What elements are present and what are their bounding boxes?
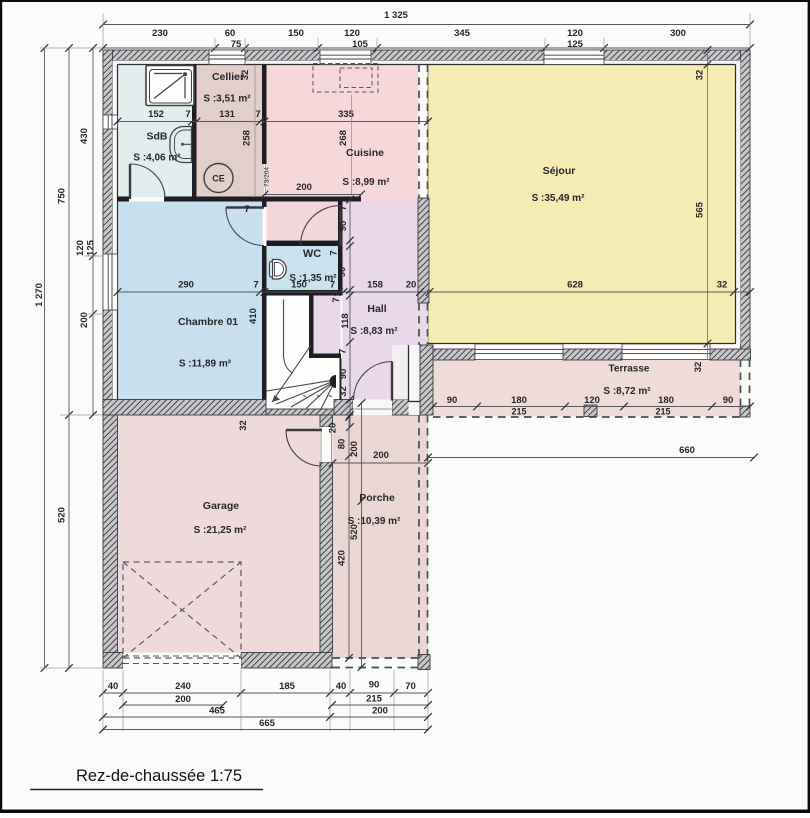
svg-text:465: 465 — [209, 706, 226, 717]
svg-text:75: 75 — [231, 39, 242, 50]
svg-text:Cuisine: Cuisine — [346, 147, 384, 159]
svg-text:152: 152 — [148, 109, 164, 120]
svg-text:S :10,39 m²: S :10,39 m² — [348, 516, 401, 527]
svg-text:Rez-de-chaussée 1:75: Rez-de-chaussée 1:75 — [76, 767, 242, 785]
svg-text:125: 125 — [567, 39, 584, 50]
svg-text:Chambre 01: Chambre 01 — [178, 316, 238, 328]
svg-text:200: 200 — [175, 694, 191, 705]
svg-text:Terrasse: Terrasse — [609, 364, 650, 375]
svg-text:Hall: Hall — [367, 303, 386, 315]
svg-text:Cellier: Cellier — [212, 71, 244, 83]
svg-text:40: 40 — [108, 681, 119, 692]
svg-text:300: 300 — [670, 28, 686, 39]
svg-text:200: 200 — [79, 312, 90, 328]
svg-text:Porche: Porche — [359, 492, 395, 504]
svg-text:240: 240 — [175, 681, 191, 692]
svg-text:125: 125 — [86, 239, 97, 256]
svg-text:410: 410 — [248, 308, 259, 324]
svg-text:90: 90 — [447, 395, 458, 406]
svg-text:32: 32 — [695, 70, 706, 81]
svg-text:20: 20 — [406, 280, 417, 291]
svg-text:180: 180 — [511, 395, 527, 406]
svg-text:1 325: 1 325 — [384, 10, 408, 21]
svg-text:90: 90 — [723, 395, 734, 406]
svg-text:258: 258 — [242, 130, 253, 146]
svg-text:150: 150 — [288, 28, 304, 39]
svg-text:32: 32 — [338, 386, 349, 397]
svg-text:90: 90 — [338, 221, 349, 232]
svg-text:215: 215 — [655, 407, 670, 417]
svg-text:7: 7 — [338, 205, 349, 210]
svg-text:S :1,35 m²: S :1,35 m² — [289, 273, 337, 284]
svg-text:628: 628 — [567, 280, 583, 291]
svg-text:90: 90 — [337, 267, 348, 278]
svg-text:7: 7 — [244, 204, 249, 215]
svg-text:Séjour: Séjour — [543, 165, 576, 177]
svg-text:7: 7 — [255, 109, 260, 120]
svg-text:70: 70 — [405, 681, 416, 692]
svg-text:32: 32 — [717, 280, 728, 291]
svg-text:Garage: Garage — [203, 500, 239, 512]
svg-text:CE: CE — [212, 174, 225, 184]
svg-text:200: 200 — [372, 706, 388, 717]
svg-text:S :8,83 m²: S :8,83 m² — [350, 326, 398, 337]
svg-text:105: 105 — [352, 39, 369, 50]
svg-text:565: 565 — [695, 201, 706, 218]
svg-text:WC: WC — [303, 248, 321, 260]
svg-text:200: 200 — [373, 450, 389, 461]
svg-text:158: 158 — [367, 280, 383, 291]
svg-text:430: 430 — [79, 128, 90, 144]
svg-text:200: 200 — [349, 441, 360, 457]
svg-text:80: 80 — [337, 439, 348, 450]
svg-text:345: 345 — [454, 28, 471, 39]
svg-text:200: 200 — [296, 182, 312, 193]
svg-text:230: 230 — [152, 28, 168, 39]
svg-text:120: 120 — [75, 240, 86, 256]
svg-text:420: 420 — [337, 550, 348, 566]
svg-text:7: 7 — [329, 250, 340, 255]
svg-text:SdB: SdB — [147, 131, 168, 143]
svg-text:7: 7 — [331, 297, 342, 302]
svg-text:120: 120 — [567, 28, 583, 39]
svg-text:215: 215 — [366, 694, 383, 705]
svg-text:290: 290 — [178, 280, 194, 291]
svg-text:S :4,06 m²: S :4,06 m² — [133, 153, 181, 164]
svg-text:750: 750 — [57, 188, 68, 204]
svg-text:520: 520 — [57, 507, 68, 523]
svg-text:S :3,51 m²: S :3,51 m² — [203, 94, 251, 105]
svg-text:60: 60 — [225, 28, 236, 39]
svg-text:180: 180 — [658, 395, 674, 406]
svg-text:40: 40 — [336, 681, 347, 692]
svg-text:32: 32 — [238, 420, 249, 431]
svg-text:131: 131 — [219, 109, 236, 120]
svg-text:S :11,89 m²: S :11,89 m² — [179, 359, 232, 370]
svg-text:7: 7 — [253, 280, 258, 291]
svg-text:268: 268 — [338, 130, 349, 146]
svg-text:215: 215 — [511, 407, 526, 417]
svg-text:S :21,25 m²: S :21,25 m² — [194, 525, 247, 536]
svg-text:32: 32 — [693, 362, 704, 373]
svg-text:7: 7 — [185, 109, 190, 120]
svg-text:S :35,49 m²: S :35,49 m² — [532, 193, 585, 204]
svg-text:120: 120 — [584, 395, 600, 406]
svg-text:20: 20 — [328, 423, 339, 434]
svg-text:73/204: 73/204 — [264, 167, 271, 187]
svg-text:665: 665 — [259, 718, 276, 729]
svg-text:90: 90 — [369, 680, 380, 691]
svg-text:7: 7 — [338, 349, 349, 354]
svg-text:90: 90 — [338, 369, 349, 380]
svg-text:120: 120 — [344, 28, 360, 39]
svg-text:S :8,99 m²: S :8,99 m² — [342, 177, 390, 188]
svg-text:185: 185 — [279, 681, 296, 692]
svg-text:335: 335 — [338, 109, 355, 120]
svg-text:118: 118 — [340, 313, 351, 328]
svg-text:S :8,72 m²: S :8,72 m² — [603, 386, 651, 397]
svg-text:1 270: 1 270 — [34, 283, 45, 307]
svg-text:660: 660 — [679, 445, 695, 456]
